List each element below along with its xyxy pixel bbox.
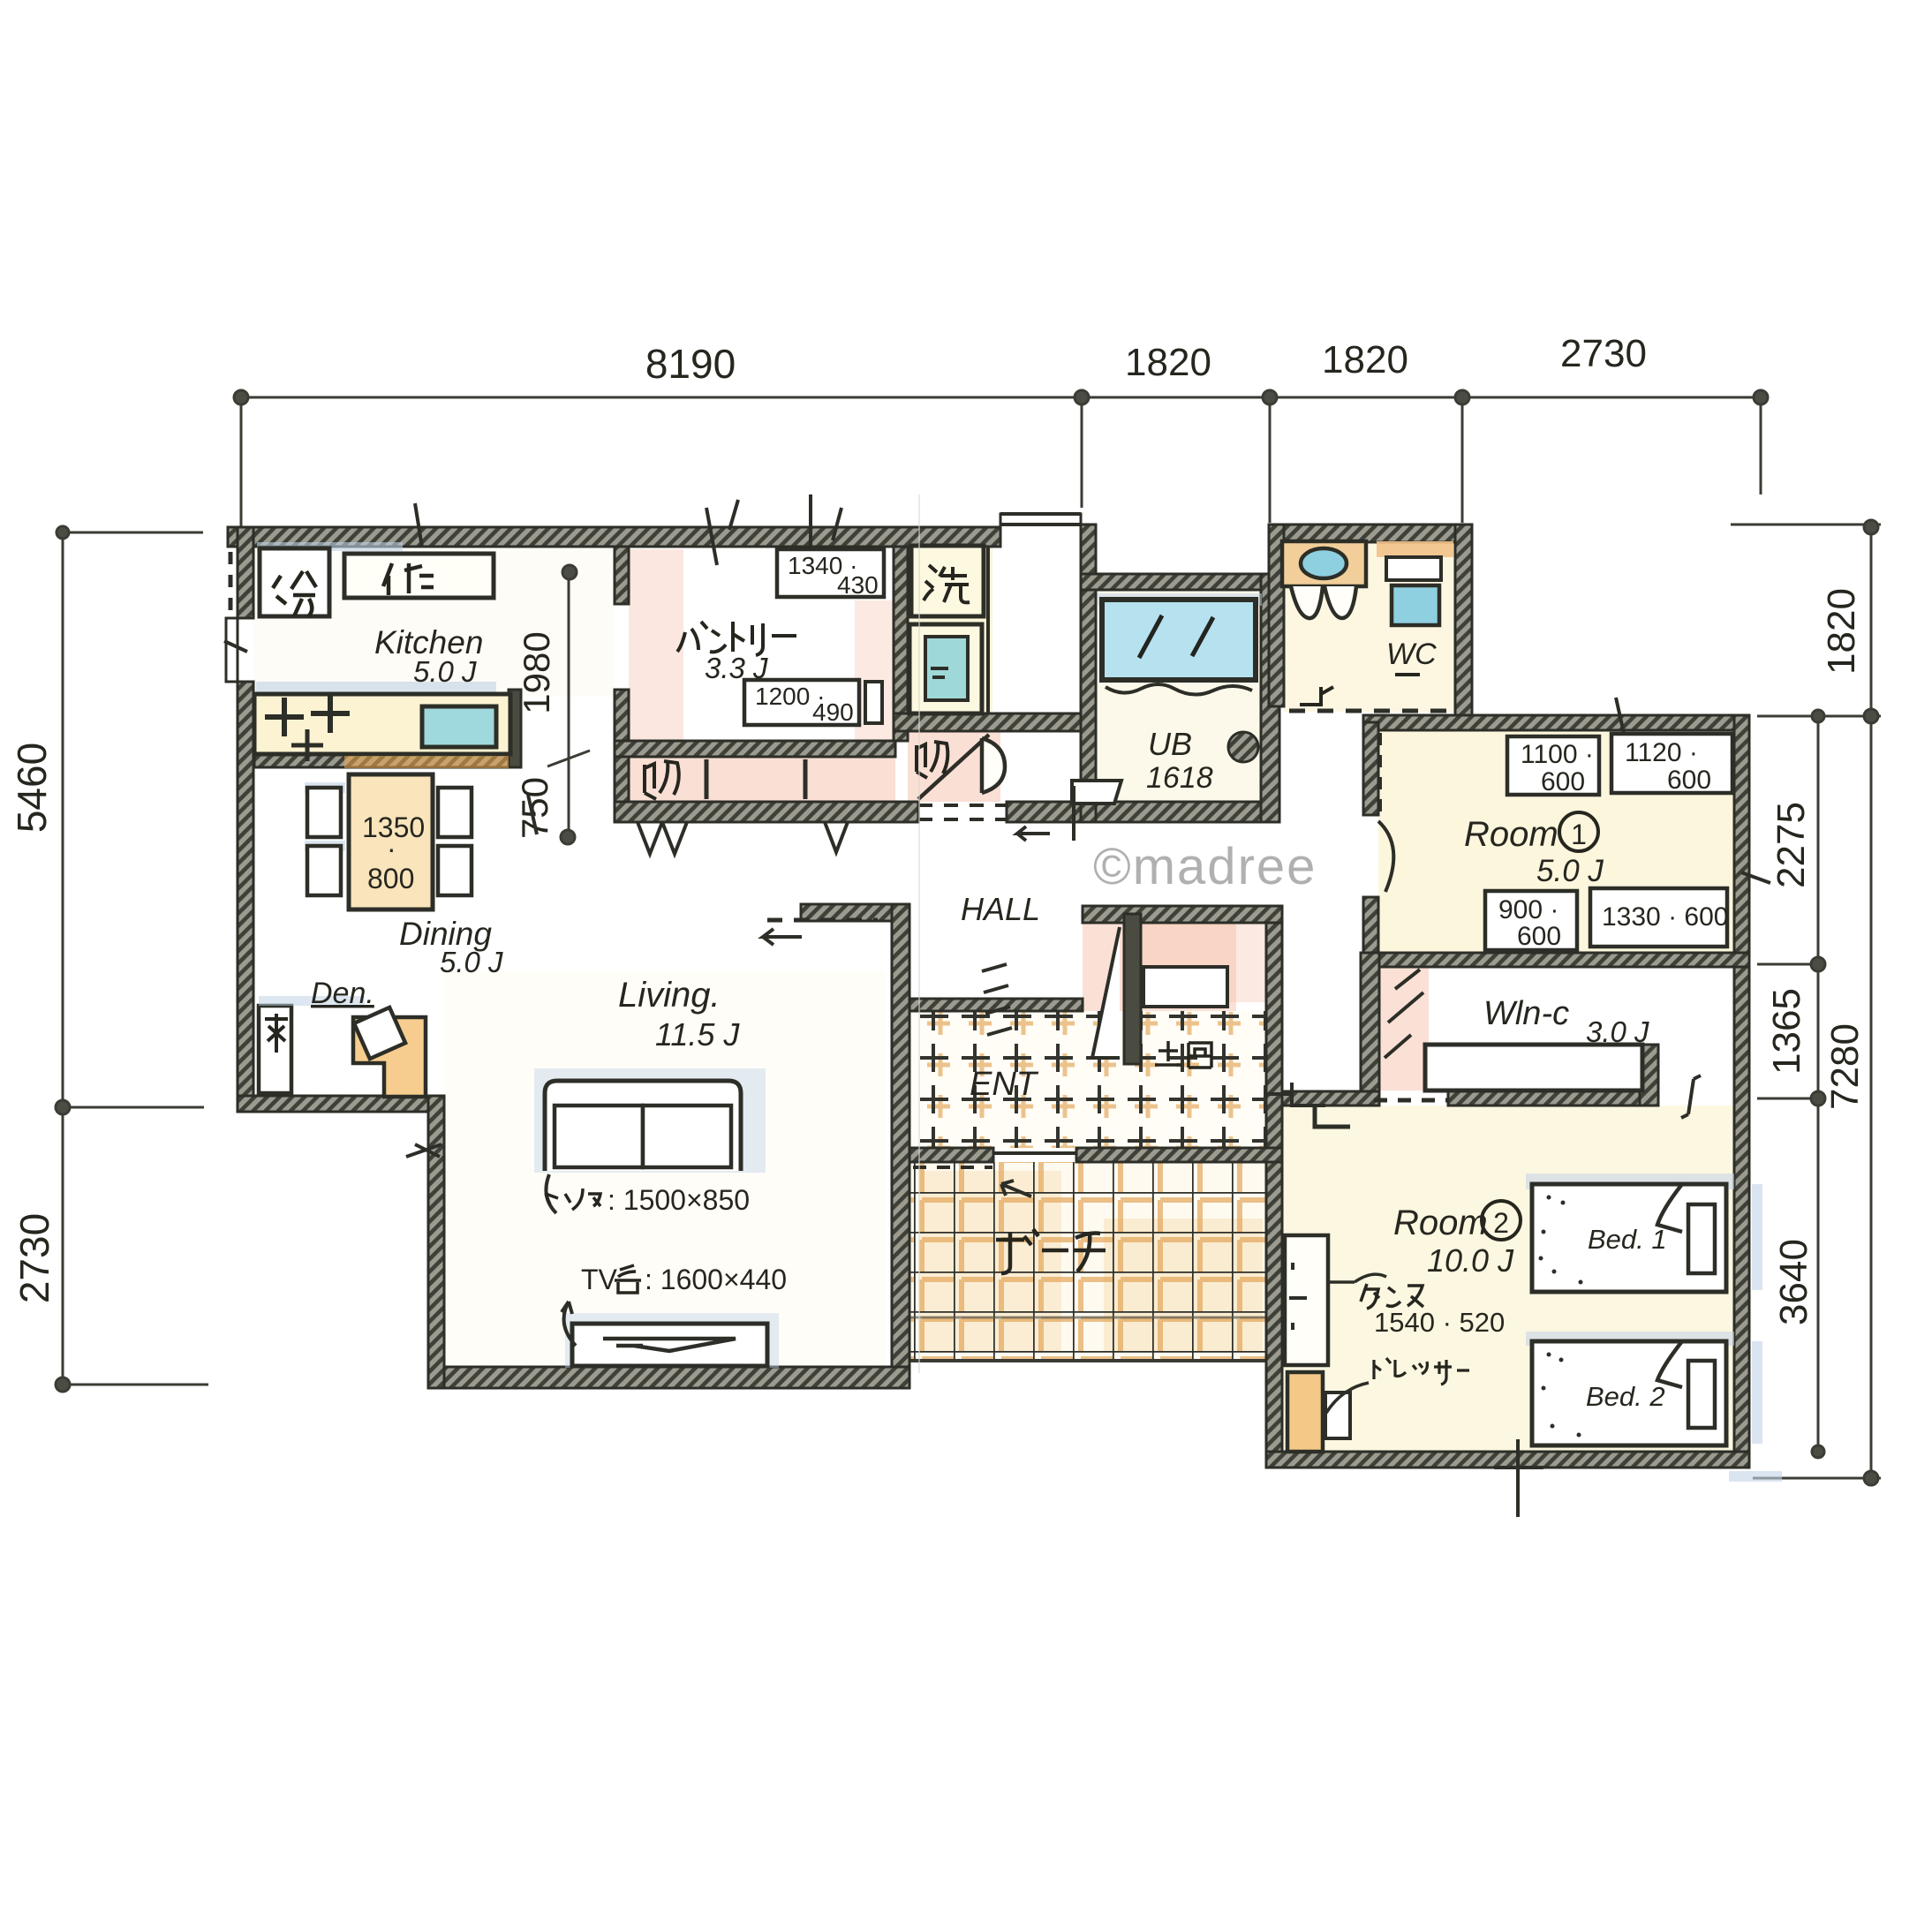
svg-text:Room: Room bbox=[1393, 1204, 1488, 1242]
svg-text:1540 · 520: 1540 · 520 bbox=[1374, 1307, 1505, 1338]
svg-text:1365: 1365 bbox=[1765, 988, 1808, 1075]
svg-text:900 ·: 900 · bbox=[1498, 895, 1558, 924]
svg-text:5.0 J: 5.0 J bbox=[440, 946, 503, 978]
svg-text:2275: 2275 bbox=[1770, 802, 1813, 888]
svg-text:490: 490 bbox=[812, 698, 854, 726]
svg-text:1820: 1820 bbox=[1322, 338, 1408, 381]
svg-text:1: 1 bbox=[1571, 819, 1587, 850]
svg-text:·: · bbox=[387, 833, 396, 864]
svg-text:Den.: Den. bbox=[311, 977, 374, 1010]
svg-text:430: 430 bbox=[837, 571, 879, 599]
svg-text:Wln-c: Wln-c bbox=[1483, 995, 1569, 1032]
svg-text:1120 ·: 1120 · bbox=[1625, 738, 1698, 767]
svg-text:11.5 J: 11.5 J bbox=[655, 1016, 740, 1053]
svg-text:2730: 2730 bbox=[11, 1213, 57, 1303]
svg-text:3.0 J: 3.0 J bbox=[1586, 1015, 1649, 1048]
svg-text:UB: UB bbox=[1148, 726, 1192, 762]
svg-text:WC: WC bbox=[1386, 638, 1437, 671]
svg-text:Bed. 2: Bed. 2 bbox=[1586, 1381, 1665, 1412]
svg-text:600: 600 bbox=[1667, 766, 1711, 795]
svg-text:Bed. 1: Bed. 1 bbox=[1588, 1224, 1667, 1255]
svg-text:5.0 J: 5.0 J bbox=[413, 655, 477, 688]
svg-text:1820: 1820 bbox=[1125, 341, 1211, 384]
svg-text:: 1500×850: : 1500×850 bbox=[608, 1184, 750, 1216]
svg-text:©madree: ©madree bbox=[1093, 838, 1317, 895]
svg-text:2730: 2730 bbox=[1560, 332, 1647, 375]
svg-text:3640: 3640 bbox=[1772, 1239, 1815, 1325]
svg-text:1100 ·: 1100 · bbox=[1521, 740, 1594, 769]
svg-text:7280: 7280 bbox=[1823, 1023, 1867, 1110]
svg-text:ENT: ENT bbox=[970, 1066, 1039, 1103]
svg-text:1330 · 600: 1330 · 600 bbox=[1602, 902, 1728, 932]
svg-text:1820: 1820 bbox=[1820, 588, 1863, 675]
svg-text:8190: 8190 bbox=[645, 341, 736, 387]
svg-text:10.0 J: 10.0 J bbox=[1427, 1242, 1514, 1279]
svg-text:: 1600×440: : 1600×440 bbox=[645, 1264, 787, 1295]
svg-text:5460: 5460 bbox=[9, 743, 55, 833]
svg-text:600: 600 bbox=[1517, 922, 1561, 951]
svg-text:Room: Room bbox=[1464, 815, 1558, 854]
svg-text:800: 800 bbox=[367, 863, 414, 894]
svg-text:TV: TV bbox=[581, 1264, 618, 1295]
svg-text:3.3 J: 3.3 J bbox=[705, 652, 768, 684]
svg-text:2: 2 bbox=[1493, 1207, 1509, 1239]
svg-text:Living.: Living. bbox=[618, 976, 721, 1015]
svg-text:HALL: HALL bbox=[961, 891, 1040, 927]
svg-text:1618: 1618 bbox=[1146, 761, 1213, 795]
svg-text:600: 600 bbox=[1541, 767, 1585, 796]
svg-text:5.0 J: 5.0 J bbox=[1536, 854, 1604, 888]
